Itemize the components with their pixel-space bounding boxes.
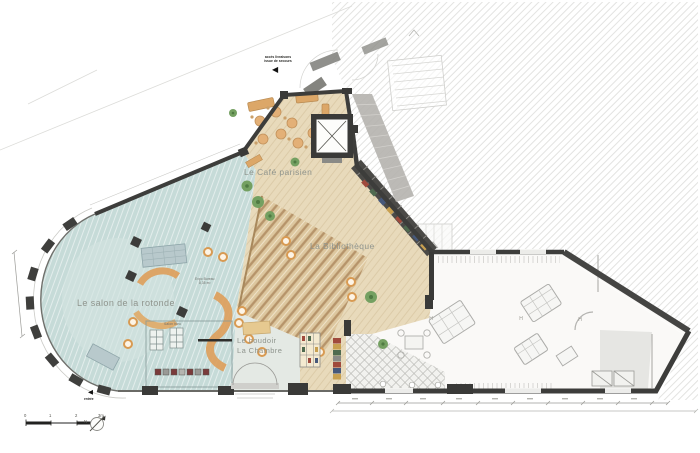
small-label-expo: Expo Bureau 8,35 m² — [195, 278, 215, 285]
small-label-expo-line2: 8,35 m² — [195, 282, 215, 286]
floor-plan-page: H H H Le Café parisien La Bibliothèque L… — [0, 0, 700, 453]
room-label-chambre: La Chambre — [237, 346, 282, 355]
scale-tick-1: 1 — [49, 413, 51, 418]
entrance-label: entrée — [84, 397, 94, 401]
elevator — [311, 114, 353, 163]
north-label: N — [84, 419, 87, 424]
entrance-arrow-icon: ◀ — [88, 388, 93, 396]
door-handle-marker: H — [578, 317, 582, 323]
exit-annotation: accès livraisons issue de secours — [250, 55, 306, 64]
exit-annotation-line2: issue de secours — [250, 59, 306, 63]
exit-arrow-icon: ◀ — [272, 65, 278, 74]
small-label-salon-bleu: Salon bleu — [164, 322, 181, 326]
scale-tick-0: 0 — [24, 413, 26, 418]
room-label-boudoir: Le boudoir — [237, 336, 276, 345]
door-handle-marker: H — [429, 316, 433, 322]
scale-tick-2: 2 — [75, 413, 77, 418]
room-label-cafe: Le Café parisien — [244, 167, 312, 177]
door-handle-marker: H — [519, 316, 523, 322]
room-label-bibliotheque: La Bibliothèque — [310, 241, 375, 251]
scale-tick-3: 3m — [98, 413, 104, 418]
room-label-rotonde: Le salon de la rotonde — [77, 298, 175, 308]
floor-plan-drawing: H H H — [0, 0, 700, 453]
